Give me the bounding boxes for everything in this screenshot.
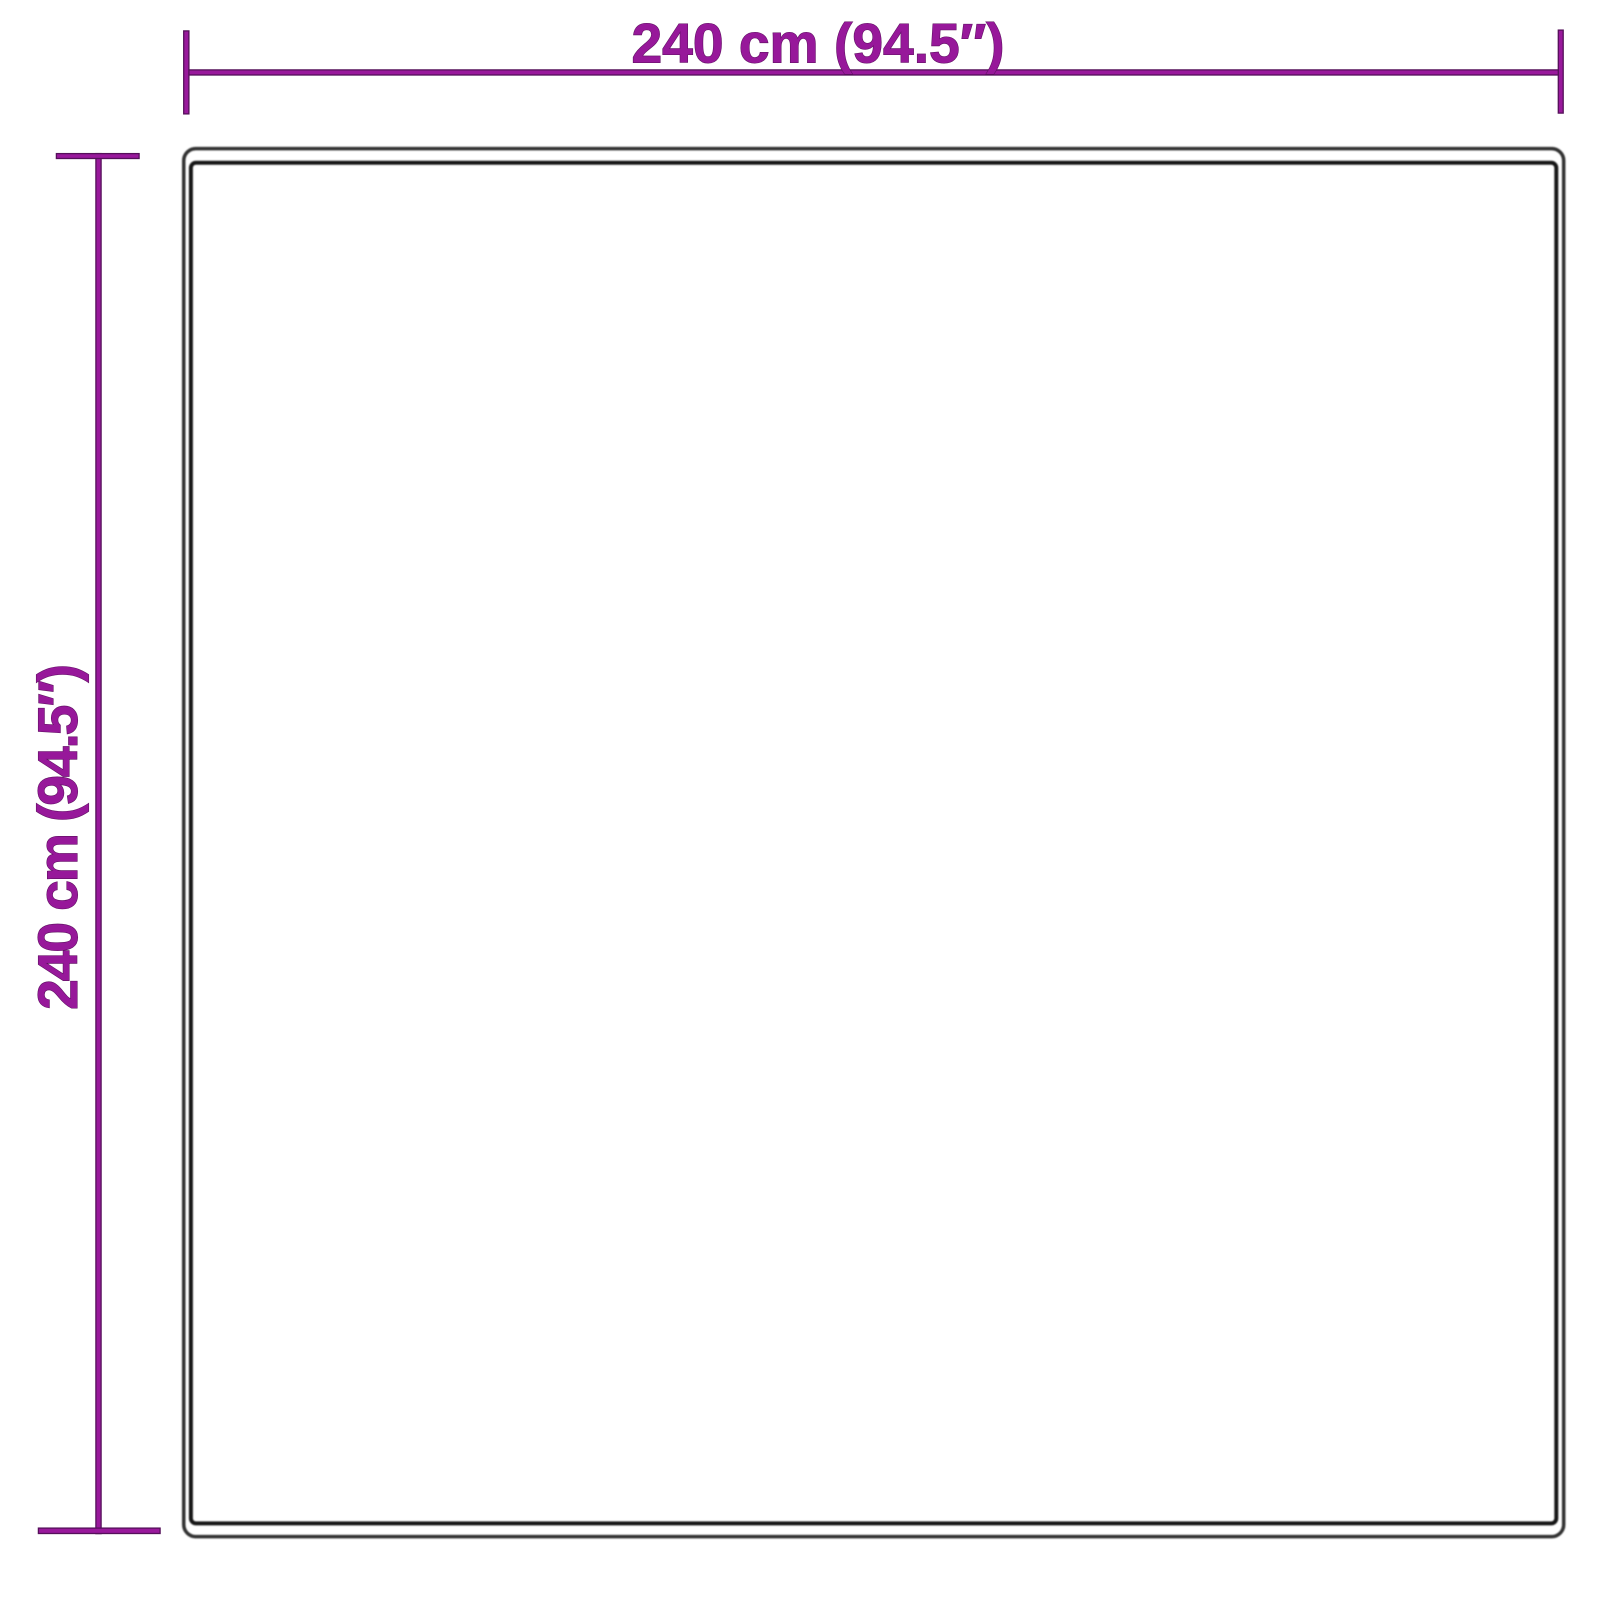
svg-text:240 cm (94.5″): 240 cm (94.5″) [27,666,89,1010]
svg-text:240 cm (94.5″): 240 cm (94.5″) [631,12,1004,74]
